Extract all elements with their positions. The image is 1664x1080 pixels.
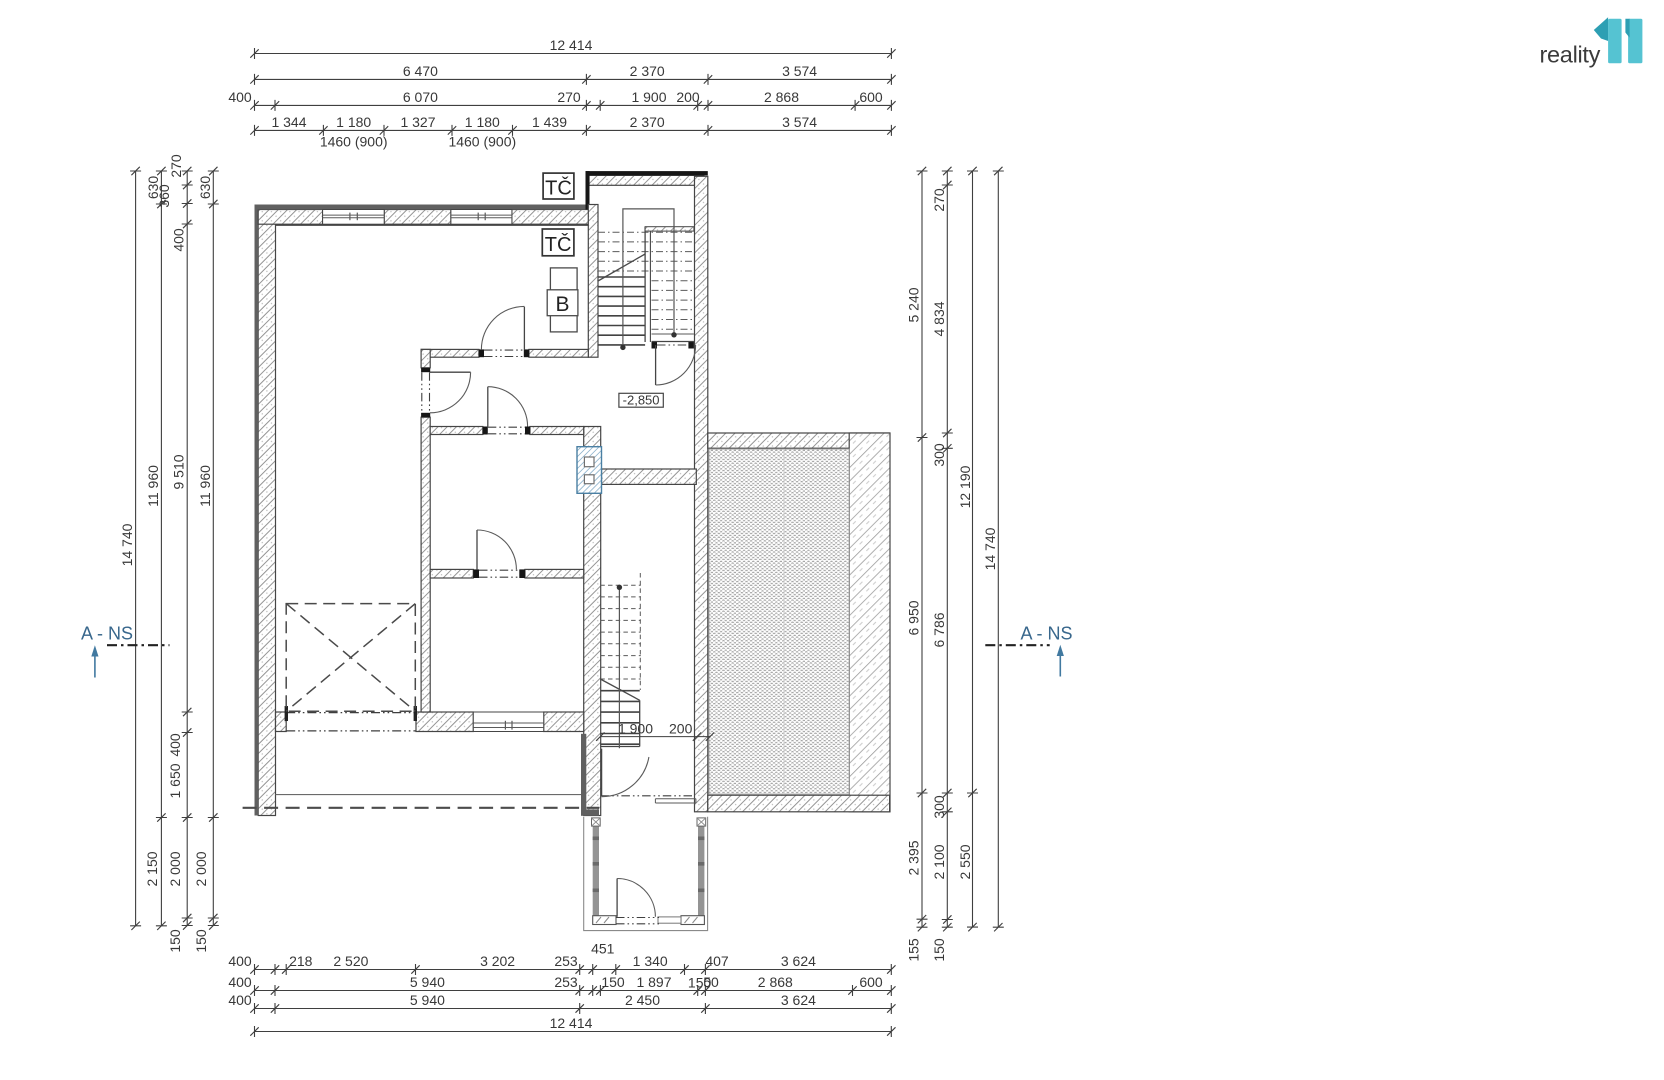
svg-text:1 900: 1 900	[631, 89, 666, 105]
svg-text:11 960: 11 960	[197, 465, 213, 507]
svg-text:B: B	[555, 293, 569, 316]
svg-text:150: 150	[193, 929, 209, 953]
svg-text:1 439: 1 439	[532, 114, 567, 130]
svg-text:270: 270	[557, 89, 581, 105]
svg-text:1 180: 1 180	[336, 114, 371, 130]
svg-text:6 070: 6 070	[403, 89, 438, 105]
svg-text:400: 400	[171, 228, 187, 252]
svg-text:400: 400	[228, 953, 252, 969]
svg-text:2 370: 2 370	[630, 63, 665, 79]
svg-text:5 940: 5 940	[410, 974, 445, 990]
svg-text:360: 360	[156, 184, 172, 208]
svg-text:2 395: 2 395	[906, 840, 922, 875]
svg-text:A - NS: A - NS	[81, 624, 133, 644]
svg-text:6 470: 6 470	[403, 63, 438, 79]
svg-text:600: 600	[859, 974, 883, 990]
svg-text:3 574: 3 574	[782, 63, 817, 79]
svg-text:2 000: 2 000	[193, 851, 209, 886]
svg-text:1460 (900): 1460 (900)	[320, 134, 388, 150]
svg-text:1 340: 1 340	[633, 953, 668, 969]
svg-text:150: 150	[931, 938, 947, 962]
svg-text:1 650: 1 650	[167, 763, 183, 798]
svg-text:270: 270	[168, 154, 184, 178]
svg-text:5 940: 5 940	[410, 992, 445, 1008]
svg-text:TČ: TČ	[545, 233, 572, 256]
svg-text:630: 630	[197, 176, 213, 200]
svg-text:12 190: 12 190	[957, 465, 973, 508]
svg-text:2 150: 2 150	[144, 851, 160, 886]
svg-text:2 000: 2 000	[167, 851, 183, 886]
svg-text:2 450: 2 450	[625, 992, 660, 1008]
svg-text:2 550: 2 550	[957, 844, 973, 879]
svg-text:11 960: 11 960	[145, 465, 161, 507]
svg-text:3 624: 3 624	[781, 992, 816, 1008]
svg-text:218: 218	[289, 953, 313, 969]
svg-text:2 370: 2 370	[630, 114, 665, 130]
svg-text:1 327: 1 327	[400, 114, 435, 130]
svg-text:300: 300	[931, 443, 947, 467]
svg-text:12 414: 12 414	[550, 37, 593, 53]
svg-text:TČ: TČ	[545, 176, 572, 199]
svg-text:2 520: 2 520	[333, 953, 368, 969]
svg-text:2 100: 2 100	[931, 844, 947, 879]
svg-text:reality: reality	[1540, 42, 1601, 68]
svg-text:150: 150	[601, 974, 625, 990]
svg-text:3 624: 3 624	[781, 953, 816, 969]
svg-text:270: 270	[931, 188, 947, 212]
svg-text:200: 200	[669, 721, 693, 737]
svg-text:1 900: 1 900	[618, 721, 653, 737]
svg-text:14 740: 14 740	[119, 523, 135, 566]
svg-text:9 510: 9 510	[171, 454, 187, 489]
svg-text:12 414: 12 414	[550, 1015, 593, 1031]
svg-text:6 950: 6 950	[906, 600, 922, 635]
svg-text:400: 400	[167, 733, 183, 757]
svg-text:407: 407	[705, 953, 729, 969]
svg-text:4 834: 4 834	[931, 301, 947, 336]
svg-text:A - NS: A - NS	[1020, 624, 1072, 644]
svg-text:5 240: 5 240	[906, 287, 922, 322]
svg-text:451: 451	[591, 941, 615, 957]
svg-text:50: 50	[703, 974, 719, 990]
svg-text:1460 (900): 1460 (900)	[448, 134, 516, 150]
svg-text:3 202: 3 202	[480, 953, 515, 969]
svg-text:155: 155	[906, 938, 922, 962]
svg-text:1 344: 1 344	[271, 114, 306, 130]
svg-text:200: 200	[676, 89, 700, 105]
svg-text:3 574: 3 574	[782, 114, 817, 130]
svg-text:400: 400	[228, 974, 252, 990]
svg-text:1 897: 1 897	[636, 974, 671, 990]
svg-text:400: 400	[228, 992, 252, 1008]
svg-text:1 180: 1 180	[465, 114, 500, 130]
svg-text:253: 253	[554, 953, 578, 969]
svg-text:-2,850: -2,850	[623, 393, 660, 408]
svg-text:2 868: 2 868	[764, 89, 799, 105]
svg-text:300: 300	[931, 795, 947, 819]
svg-text:400: 400	[228, 89, 252, 105]
svg-text:14 740: 14 740	[982, 527, 998, 570]
svg-text:2 868: 2 868	[758, 974, 793, 990]
svg-text:253: 253	[554, 974, 578, 990]
svg-text:600: 600	[859, 89, 883, 105]
svg-text:150: 150	[167, 929, 183, 953]
svg-text:6 786: 6 786	[931, 612, 947, 647]
